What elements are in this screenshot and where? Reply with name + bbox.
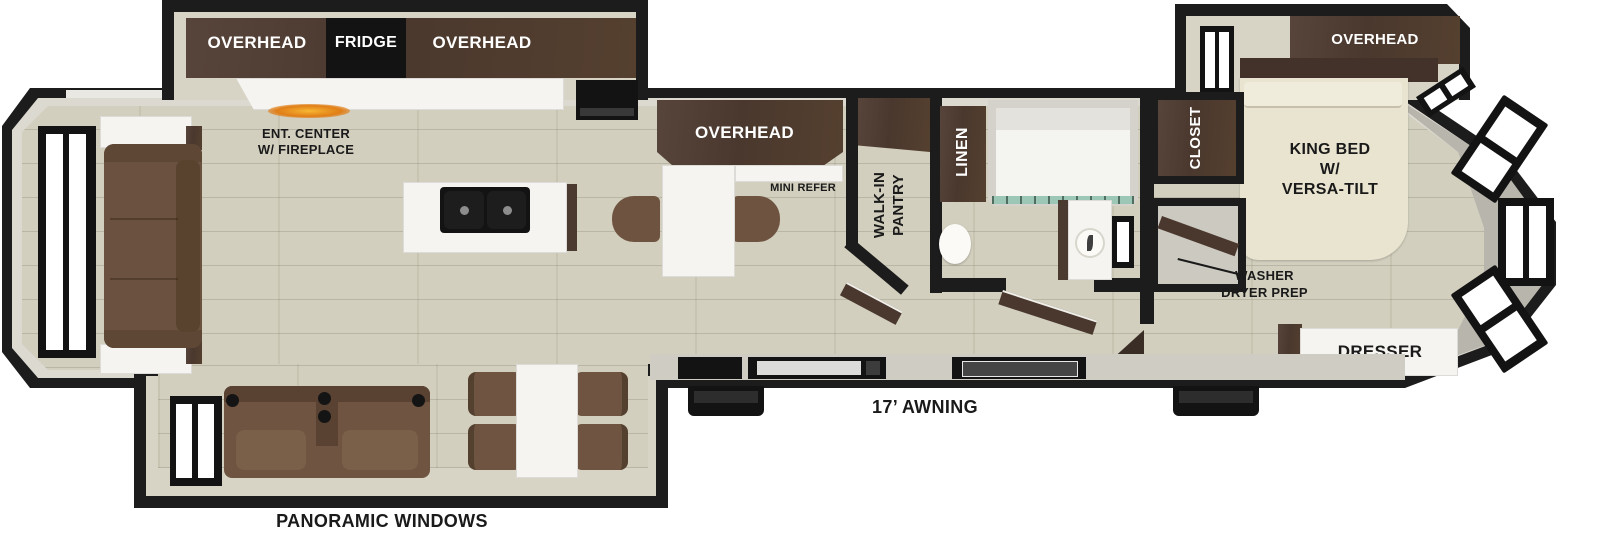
fireplace-glow [268,104,350,118]
sofa-end-table-bottom [100,344,192,374]
dinette-chair [468,424,522,470]
kitchen-overhead-left-label: OVERHEAD [192,30,322,56]
dinette-chair [574,372,628,416]
kitchen-overhead-right-label: OVERHEAD [417,30,547,56]
vanity-side-panel [1058,200,1068,280]
entry-door-panel [678,357,742,379]
rear-window [38,126,96,358]
panoramic-windows-label: PANORAMIC WINDOWS [252,509,512,533]
fridge-label: FRIDGE [326,30,406,56]
king-bed-label: KING BED W/ VERSA-TILT [1262,138,1398,202]
cupholder [412,394,425,407]
walk-in-pantry-label: WALK-IN PANTRY [872,140,908,270]
theater-seats [224,386,430,478]
dinette-table [516,364,578,478]
bedroom-overhead-label: OVERHEAD [1305,28,1445,52]
sink-drain-right [503,206,512,215]
bath-bottom-wall-right [1094,278,1152,292]
cap-window-middle [1498,198,1554,286]
bedroom-entry-step [1173,386,1259,416]
bar-stool-right [732,196,780,242]
bedroom-slide-window [1200,26,1234,94]
bath-bottom-wall-left [942,278,1006,292]
dinette-chair [468,372,522,416]
island-sink [440,187,530,233]
bathroom-window [1112,216,1134,268]
toilet [939,224,971,264]
ent-center-label: ENT. CENTER W/ FIREPLACE [240,126,372,158]
bathtub [988,100,1138,206]
entry-window-assembly [748,357,886,379]
rear-sofa [104,144,202,348]
peninsula-bar-top [735,165,843,182]
island-side-panel [567,184,577,251]
floorplan-canvas: OVERHEAD FRIDGE OVERHEAD ENT. CENTER W/ … [0,0,1600,538]
bottom-window [952,357,1086,379]
cupholder [318,410,331,423]
bed-pillows [1244,82,1402,108]
sink-drain-left [460,206,469,215]
awning-label: 17’ AWNING [825,395,1025,419]
closet-label: CLOSET [1186,93,1206,183]
cupholder [318,392,331,405]
cupholder [226,394,239,407]
linen-label: LINEN [953,102,973,202]
washer-dryer-prep-label: WASHER DRYER PREP [1202,268,1327,302]
vanity-sink [1075,228,1105,258]
mini-refer-label: MINI REFER [748,182,858,196]
theater-slide-window [170,396,222,486]
peninsula-overhead-label: OVERHEAD [672,120,817,146]
entry-step [688,386,764,416]
pantry-wall-left [846,96,858,248]
range-cooktop [576,80,638,120]
peninsula-counter-column [662,165,735,277]
bar-stool-left [612,196,660,242]
dinette-chair [574,424,628,470]
rear-top-window [66,90,162,98]
